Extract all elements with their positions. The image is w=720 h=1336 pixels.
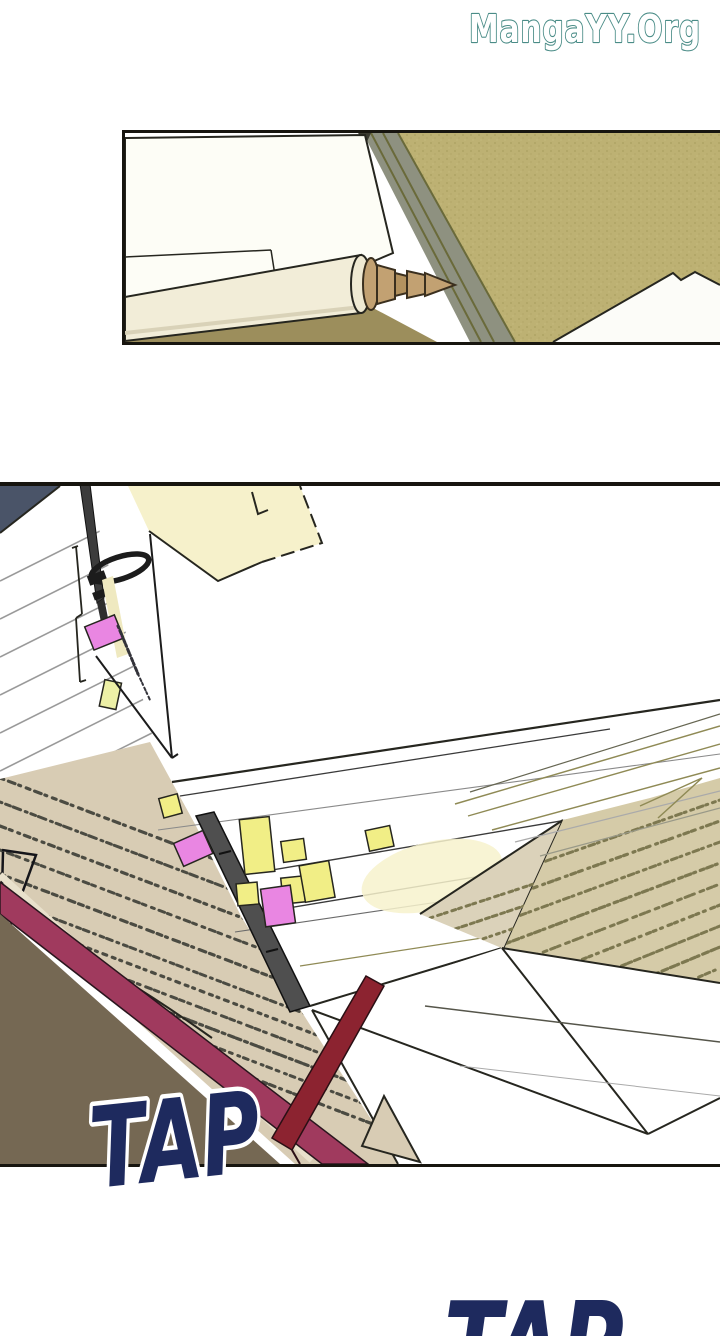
scroll-desk-illustration — [125, 133, 720, 342]
tab-yellow — [239, 817, 275, 875]
manga-page: MangaYY.Org — [0, 0, 720, 1336]
panel-scroll-on-desk — [122, 130, 720, 345]
tab-magenta — [261, 885, 296, 927]
tab-yellow — [299, 861, 335, 903]
sfx-tap-bottom-text: TAP — [444, 1294, 624, 1336]
tab-yellow — [159, 794, 183, 818]
watermark-text: MangaYY.Org — [469, 7, 701, 51]
site-watermark: MangaYY.Org — [452, 2, 718, 58]
tab-yellow — [236, 882, 259, 906]
panel-cluttered-desk — [0, 482, 720, 1167]
tab-yellow — [365, 826, 394, 852]
tab-yellow — [281, 838, 307, 862]
sfx-tap-bottom: TAP — [438, 1294, 648, 1336]
desk-illustration — [0, 486, 720, 1164]
